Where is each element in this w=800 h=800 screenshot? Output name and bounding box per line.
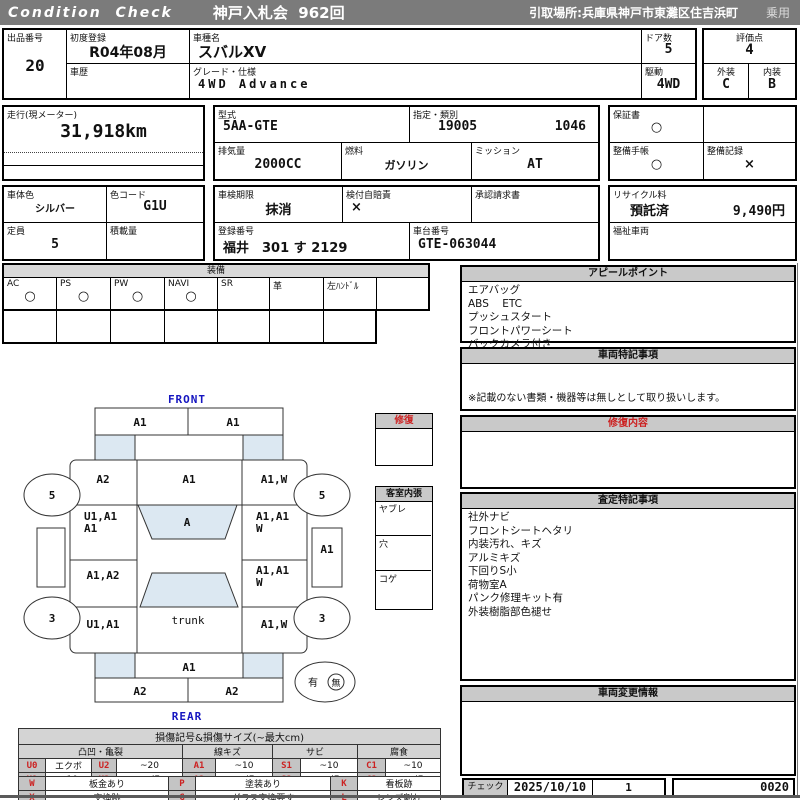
cabin-row-label: ヤブレ bbox=[379, 502, 406, 515]
equipment-cell-lhd: 左ﾊﾝﾄﾞﾙ bbox=[324, 278, 377, 309]
rear-label: REAR bbox=[172, 710, 203, 723]
reg-no-value: 福井 301 す 2129 bbox=[215, 237, 409, 256]
fuel-label: 燃料 bbox=[345, 144, 363, 157]
rear-door-left-code: A1,A2 bbox=[86, 569, 119, 582]
welfare-cell: 福祉車両 bbox=[610, 223, 795, 259]
rear-bumper bbox=[95, 678, 283, 702]
bottom-rule bbox=[0, 795, 800, 798]
warranty-cell: 保証書 ○ bbox=[610, 107, 704, 143]
legend-value: エクボ bbox=[46, 759, 92, 773]
service-book-cell: 整備手帳 ○ bbox=[610, 143, 704, 179]
rear-panel-code: A1 bbox=[182, 661, 196, 674]
front-fender-left-code: A2 bbox=[96, 473, 109, 486]
docs-box: 保証書 ○ 整備手帳 ○ 整備記録 × bbox=[608, 105, 797, 181]
legend-code: C1 bbox=[358, 759, 386, 773]
reg-no-cell: 登録番号 福井 301 す 2129 bbox=[215, 223, 410, 259]
legend-title: 損傷記号&損傷サイズ(~最大cm) bbox=[19, 729, 441, 745]
type-value: 5AA-GTE bbox=[215, 119, 409, 134]
lot-number-label: 出品番号 bbox=[7, 31, 43, 44]
repair-flag-box: 修復 bbox=[375, 413, 433, 466]
cabin-lining-title: 客室内張 bbox=[376, 487, 432, 502]
repair-flag-title: 修復 bbox=[376, 414, 432, 429]
recycle-cell: リサイクル料 預託済 9,490円 bbox=[610, 187, 795, 223]
load-label: 積載量 bbox=[110, 224, 137, 237]
left-sill bbox=[37, 528, 65, 587]
equipment-empty-cell bbox=[57, 311, 111, 342]
repair-details-title: 修復内容 bbox=[462, 417, 794, 432]
cabin-row-label: 穴 bbox=[379, 537, 388, 550]
rear-corner-left bbox=[95, 653, 135, 678]
warranty-value: ○ bbox=[610, 120, 703, 135]
rear-left-wheel-code: 3 bbox=[49, 612, 56, 625]
service-record-value: × bbox=[704, 157, 795, 172]
transmission-cell: ミッション AT bbox=[472, 143, 598, 179]
legend-code: S1 bbox=[273, 759, 301, 773]
displacement-value: 2000CC bbox=[215, 157, 341, 172]
insurance-cell: 検付自賠責 × bbox=[343, 187, 472, 223]
equipment-cell-navi: NAVI ○ bbox=[165, 278, 218, 309]
vehicle-notes-title: 車両特記事項 bbox=[462, 349, 794, 364]
right-sill-code: A1 bbox=[320, 543, 334, 556]
legend-value: 板金あり bbox=[46, 777, 169, 791]
legend-code: W bbox=[19, 777, 46, 791]
equipment-cell-pw: PW ○ bbox=[111, 278, 165, 309]
quarter-right-code: A1,W bbox=[261, 618, 288, 631]
legend-value: ~10 bbox=[386, 759, 441, 773]
service-book-value: ○ bbox=[610, 157, 703, 172]
rear-door-right-code2: W bbox=[256, 576, 263, 589]
equipment-value: ○ bbox=[4, 289, 56, 304]
front-bumper bbox=[95, 408, 283, 435]
check-count: 1 bbox=[593, 780, 664, 795]
reg-no-label: 登録番号 bbox=[218, 224, 254, 237]
fuel-cell: 燃料 ガソリン bbox=[342, 143, 472, 179]
equipment-label: PS bbox=[60, 279, 71, 289]
mileage-box: 走行(現メーター) 31,918km bbox=[2, 105, 205, 181]
legend-value: 看板跡 bbox=[358, 777, 441, 791]
inspection-value: 抹消 bbox=[215, 199, 342, 218]
lot-number-cell: 出品番号 20 bbox=[4, 30, 67, 98]
color-box: 車体色 シルバー 色コード G1U 定員 5 積載量 bbox=[2, 185, 205, 261]
doors-cell: ドア数 5 bbox=[642, 30, 695, 64]
class-no2-value: 1046 bbox=[555, 119, 586, 134]
chassis-label: 車台番号 bbox=[413, 224, 449, 237]
body-color-value: シルバー bbox=[4, 200, 106, 215]
drive-cell: 駆動 4WD bbox=[642, 64, 695, 98]
legend-code: U2 bbox=[92, 759, 117, 773]
front-door-right-code2: W bbox=[256, 522, 263, 535]
color-code-cell: 色コード G1U bbox=[107, 187, 203, 223]
equipment-label: NAVI bbox=[168, 279, 189, 289]
spare-tire-indicator bbox=[295, 662, 355, 702]
appeal-line: プッシュスタート bbox=[468, 311, 788, 325]
cabin-lining-box: 客室内張 ヤブレ 穴 コゲ bbox=[375, 486, 433, 610]
inspection-cell: 車検期限 抹消 bbox=[215, 187, 343, 223]
first-registration-value: R04年08月 bbox=[67, 42, 189, 62]
assessment-line: 下回りS小 bbox=[468, 565, 788, 579]
equipment-value: ○ bbox=[57, 289, 110, 304]
equipment-empty-cell bbox=[111, 311, 165, 342]
body-color-cell: 車体色 シルバー bbox=[4, 187, 107, 223]
front-bumper-left-code: A1 bbox=[133, 416, 147, 429]
appeal-line: ABS ETC bbox=[468, 298, 788, 312]
equipment-title: 装備 bbox=[4, 265, 428, 278]
repair-details-panel: 修復内容 bbox=[460, 415, 796, 489]
spare-no-label: 無 bbox=[331, 677, 340, 689]
exterior-grade-value: C bbox=[704, 77, 748, 92]
windshield-code: A bbox=[184, 516, 191, 529]
interior-grade-cell: 内装 B bbox=[749, 64, 795, 98]
legend-value: 塗装あり bbox=[196, 777, 331, 791]
mileage-value: 31,918km bbox=[4, 121, 203, 142]
assessment-panel: 査定特記事項 社外ナビ フロントシートヘタリ 内装汚れ、キズ アルミキズ 下回り… bbox=[460, 492, 796, 681]
fuel-value: ガソリン bbox=[342, 157, 471, 173]
score-value: 4 bbox=[704, 42, 795, 58]
equipment-cell-ac: AC ○ bbox=[4, 278, 57, 309]
equipment-cell-blank bbox=[377, 278, 428, 309]
equipment-label: 革 bbox=[273, 279, 282, 292]
recycle-box: リサイクル料 預託済 9,490円 福祉車両 bbox=[608, 185, 797, 261]
appeal-line: エアバッグ bbox=[468, 284, 788, 298]
legend-group-dent: 凸凹・亀裂 bbox=[19, 745, 183, 759]
equipment-label: PW bbox=[114, 279, 128, 289]
rear-window bbox=[140, 573, 238, 607]
legend-code: U0 bbox=[19, 759, 46, 773]
chassis-value: GTE-063044 bbox=[410, 237, 598, 252]
equipment-label: AC bbox=[7, 279, 19, 289]
chassis-cell: 車台番号 GTE-063044 bbox=[410, 223, 598, 259]
spare-yes-label: 有 bbox=[308, 676, 318, 689]
assessment-line: 荷物室A bbox=[468, 579, 788, 593]
appeal-line: フロントパワーシート bbox=[468, 325, 788, 339]
legend-value: ~10 bbox=[301, 759, 358, 773]
auction-sheet: Condition Check 神戸入札会 962回 引取場所:兵庫県神戸市東灘… bbox=[0, 0, 800, 800]
header-bar: Condition Check 神戸入札会 962回 引取場所:兵庫県神戸市東灘… bbox=[0, 0, 800, 25]
mileage-empty-row1 bbox=[4, 153, 203, 166]
doors-value: 5 bbox=[642, 42, 695, 57]
check-date: 2025/10/10 bbox=[508, 780, 593, 795]
legend-group-rust: サビ bbox=[273, 745, 358, 759]
cabin-row-label: コゲ bbox=[379, 572, 397, 585]
type-cell: 型式 5AA-GTE bbox=[215, 107, 410, 143]
front-left-wheel-code: 5 bbox=[49, 489, 56, 502]
assessment-line: アルミキズ bbox=[468, 552, 788, 566]
right-sill bbox=[312, 528, 342, 587]
mileage-cell: 走行(現メーター) 31,918km bbox=[4, 107, 203, 153]
displacement-cell: 排気量 2000CC bbox=[215, 143, 342, 179]
color-code-value: G1U bbox=[107, 199, 203, 214]
front-corner-right bbox=[243, 435, 283, 460]
equipment-empty-cell bbox=[165, 311, 218, 342]
model-value: スバルXV bbox=[190, 41, 641, 62]
rear-bumper-right-code: A2 bbox=[225, 685, 238, 698]
damage-diagram: FRONT A1 A1 A1 A2 A1 A1,W U1,A1 A1 A A1,… bbox=[0, 390, 360, 730]
vehicle-notes-note: ※記載のない書類・機器等は無しとして取り扱いします。 bbox=[462, 390, 731, 408]
front-right-wheel-code: 5 bbox=[319, 489, 326, 502]
service-book-label: 整備手帳 bbox=[613, 144, 649, 157]
rear-right-wheel-code: 3 bbox=[319, 612, 326, 625]
equipment-table: 装備 AC ○ PS ○ PW ○ NAVI ○ SR 革 左ﾊﾝﾄﾞﾙ bbox=[2, 263, 430, 311]
welfare-label: 福祉車両 bbox=[613, 224, 649, 237]
equipment-cell-sr: SR bbox=[218, 278, 270, 309]
capacity-cell: 定員 5 bbox=[4, 223, 107, 259]
cabin-row-tear: ヤブレ bbox=[376, 501, 431, 536]
first-registration-cell: 初度登録 R04年08月 bbox=[67, 30, 190, 64]
class-cell: 指定・類別 19005 1046 bbox=[410, 107, 598, 143]
front-label: FRONT bbox=[168, 393, 206, 406]
score-box: 評価点 4 外装 C 内装 B bbox=[702, 28, 797, 100]
assessment-title: 査定特記事項 bbox=[462, 494, 794, 509]
quarter-left-code: U1,A1 bbox=[86, 618, 119, 631]
equipment-empty-cell bbox=[270, 311, 324, 342]
front-fender-right-code: A1,W bbox=[261, 473, 288, 486]
legend-code: P bbox=[169, 777, 196, 791]
front-bumper-right-code: A1 bbox=[226, 416, 240, 429]
legend-code: A1 bbox=[183, 759, 216, 773]
assessment-line: パンク修理キット有 bbox=[468, 592, 788, 606]
legend-group-scratch: 線キズ bbox=[183, 745, 273, 759]
approval-label: 承認請求書 bbox=[475, 188, 520, 201]
service-record-cell: 整備記録 × bbox=[704, 143, 795, 179]
insurance-value: × bbox=[343, 200, 471, 215]
capacity-label: 定員 bbox=[7, 224, 25, 237]
drive-value: 4WD bbox=[642, 77, 695, 92]
engine-box: 型式 5AA-GTE 指定・類別 19005 1046 排気量 2000CC 燃… bbox=[213, 105, 600, 181]
pickup-location: 引取場所:兵庫県神戸市東灘区住吉浜町 bbox=[529, 4, 738, 21]
load-cell: 積載量 bbox=[107, 223, 203, 259]
appeal-title: アピールポイント bbox=[462, 267, 794, 282]
cabin-row-burn: コゲ bbox=[376, 571, 431, 607]
vehicle-class: 乗用 bbox=[766, 4, 790, 21]
approval-cell: 承認請求書 bbox=[472, 187, 598, 223]
equipment-value: ○ bbox=[165, 289, 217, 304]
front-door-left-code2: A1 bbox=[84, 522, 98, 535]
equipment-empty-cell bbox=[324, 311, 375, 342]
right-edge-rule bbox=[797, 263, 798, 797]
lot-number-value: 20 bbox=[4, 56, 66, 75]
vehicle-notes-panel: 車両特記事項 ※記載のない書類・機器等は無しとして取り扱いします。 bbox=[460, 347, 796, 411]
capacity-value: 5 bbox=[4, 237, 106, 252]
assessment-line: 社外ナビ bbox=[468, 511, 788, 525]
sheet-code: 0020 bbox=[674, 780, 793, 795]
rear-corner-right bbox=[243, 653, 283, 678]
mileage-label: 走行(現メーター) bbox=[7, 108, 77, 121]
vehicle-id-table: 出品番号 20 初度登録 R04年08月 車歴 車種名 スバルXV グレード・仕… bbox=[2, 28, 697, 100]
model-cell: 車種名 スバルXV bbox=[190, 30, 642, 64]
appeal-panel: アピールポイント エアバッグ ABS ETC プッシュスタート フロントパワーシ… bbox=[460, 265, 796, 343]
recycle-fee-value: 9,490円 bbox=[733, 200, 785, 219]
legend-group-corrosion: 腐食 bbox=[358, 745, 441, 759]
legend-value: ~10 bbox=[216, 759, 273, 773]
grade-value: 4WD Advance bbox=[190, 77, 641, 91]
history-cell: 車歴 bbox=[67, 64, 190, 98]
equipment-label: SR bbox=[221, 279, 233, 289]
equipment-empty-row bbox=[2, 309, 377, 344]
cabin-row-hole: 穴 bbox=[376, 536, 431, 571]
equipment-cell-ps: PS ○ bbox=[57, 278, 111, 309]
transmission-value: AT bbox=[472, 157, 598, 172]
history-label: 車歴 bbox=[70, 65, 88, 78]
change-info-title: 車両変更情報 bbox=[462, 687, 794, 702]
equipment-label: 左ﾊﾝﾄﾞﾙ bbox=[327, 279, 359, 292]
equipment-empty-cell bbox=[4, 311, 57, 342]
trunk-label: trunk bbox=[171, 614, 204, 627]
equipment-empty-cell bbox=[218, 311, 270, 342]
service-record-label: 整備記録 bbox=[707, 144, 743, 157]
equipment-cell-leather: 革 bbox=[270, 278, 324, 309]
registration-box: 車検期限 抹消 検付自賠責 × 承認請求書 登録番号 福井 301 す 2129… bbox=[213, 185, 600, 261]
legend-code: K bbox=[331, 777, 358, 791]
legend-value: ~20 bbox=[117, 759, 183, 773]
change-info-panel: 車両変更情報 bbox=[460, 685, 796, 776]
displacement-label: 排気量 bbox=[218, 144, 245, 157]
rear-bumper-left-code: A2 bbox=[133, 685, 146, 698]
docs-blank-cell bbox=[704, 107, 795, 143]
equipment-value: ○ bbox=[111, 289, 164, 304]
assessment-line: 内装汚れ、キズ bbox=[468, 538, 788, 552]
hood-code: A1 bbox=[182, 473, 196, 486]
grade-cell: グレード・仕様 4WD Advance bbox=[190, 64, 642, 98]
brand-title: Condition Check bbox=[8, 5, 173, 21]
mileage-empty-row2 bbox=[4, 166, 203, 179]
auction-title: 神戸入札会 962回 bbox=[213, 2, 345, 23]
assessment-line: 外装樹脂部色褪せ bbox=[468, 606, 788, 620]
interior-grade-value: B bbox=[749, 77, 795, 92]
transmission-label: ミッション bbox=[475, 144, 520, 157]
score-cell: 評価点 4 bbox=[704, 30, 795, 64]
check-label: チェック bbox=[464, 780, 508, 795]
exterior-grade-cell: 外装 C bbox=[704, 64, 749, 98]
front-corner-left bbox=[95, 435, 135, 460]
assessment-line: フロントシートヘタリ bbox=[468, 525, 788, 539]
